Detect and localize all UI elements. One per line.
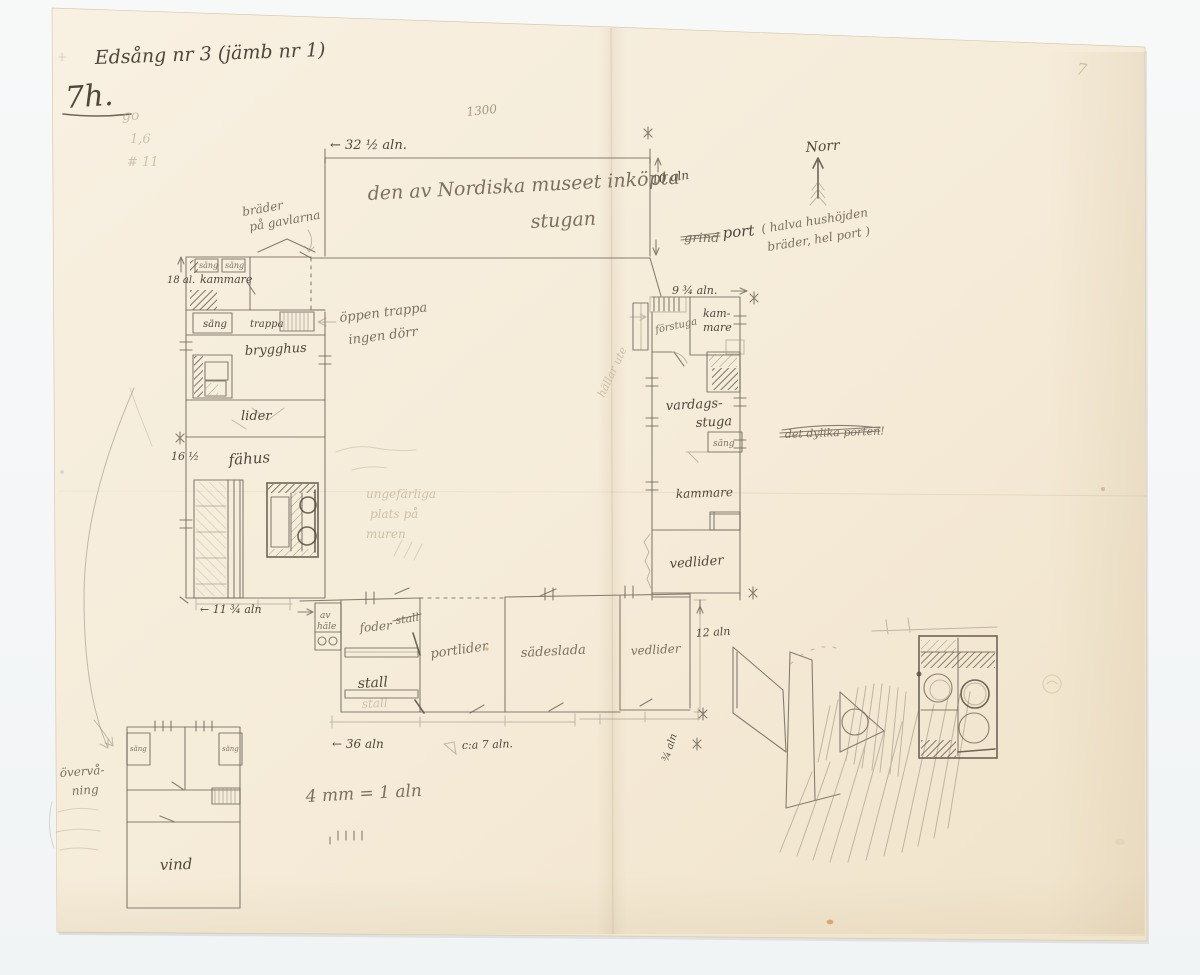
erased-note: muren bbox=[366, 527, 406, 541]
monogram: 7h. bbox=[64, 78, 114, 116]
erased-note: plats på bbox=[370, 506, 418, 521]
room-label-vardagsstuga: vardags- bbox=[665, 396, 722, 414]
hay-hatch-label: av bbox=[320, 611, 330, 621]
room-label-vind: vind bbox=[160, 855, 193, 874]
east-top-dim: 9 ¾ aln. bbox=[672, 284, 717, 297]
fahus-dim: 16 ½ bbox=[171, 450, 199, 463]
bed-label: säng bbox=[225, 261, 244, 270]
stain-speck bbox=[827, 920, 834, 925]
main-width-dim: ← 32 ½ aln. bbox=[330, 138, 407, 153]
hay-hatch-label: häle bbox=[317, 622, 336, 632]
room-label-foder: foder bbox=[358, 618, 394, 635]
room-label-kammare: kammare bbox=[200, 273, 253, 286]
wing-height-dim: 18 al. bbox=[167, 275, 195, 286]
erased-note: ungefärliga bbox=[366, 487, 436, 501]
row-side-dim: 12 aln bbox=[695, 625, 730, 640]
room-label-sang: säng bbox=[203, 319, 227, 330]
scanned-sheet-stage: Edsång nr 3 (jämb nr 1) 7h. go 1,6 # 11 … bbox=[0, 0, 1200, 975]
upper-floor-note: ning bbox=[71, 782, 99, 798]
north-label: Norr bbox=[804, 138, 841, 156]
row-circa-dim: c:a 7 aln. bbox=[462, 737, 514, 752]
bed-label: säng bbox=[199, 261, 218, 270]
faint-figure: 1,6 bbox=[130, 132, 151, 147]
room-label-stall: stall bbox=[357, 674, 388, 692]
upper-floor-note: övervå- bbox=[59, 762, 105, 780]
bed-label: säng bbox=[130, 745, 147, 753]
wing-bottom-dim: ← 11 ¾ aln bbox=[200, 603, 262, 616]
faint-figure: # 11 bbox=[127, 155, 159, 170]
main-building-label: stugan bbox=[530, 208, 596, 233]
room-label-vardagsstuga: stuga bbox=[695, 414, 732, 431]
bed-label: säng bbox=[222, 745, 239, 753]
room-label-kammare-n: kam- bbox=[703, 307, 731, 320]
row-length-dim: ← 36 aln bbox=[332, 737, 384, 751]
room-label-vedlider-s: vedlider bbox=[630, 641, 682, 658]
room-label-kammare-n: mare bbox=[703, 321, 732, 334]
bed-label: säng bbox=[713, 439, 735, 449]
room-label-trappa: trappa bbox=[250, 319, 284, 330]
faint-figure: go bbox=[122, 108, 139, 124]
room-label-kammare-s: kammare bbox=[676, 485, 734, 501]
room-label-fahus: fähus bbox=[227, 448, 271, 469]
plan-drawing: Edsång nr 3 (jämb nr 1) 7h. go 1,6 # 11 … bbox=[0, 0, 1200, 975]
port-note: port bbox=[722, 221, 756, 242]
